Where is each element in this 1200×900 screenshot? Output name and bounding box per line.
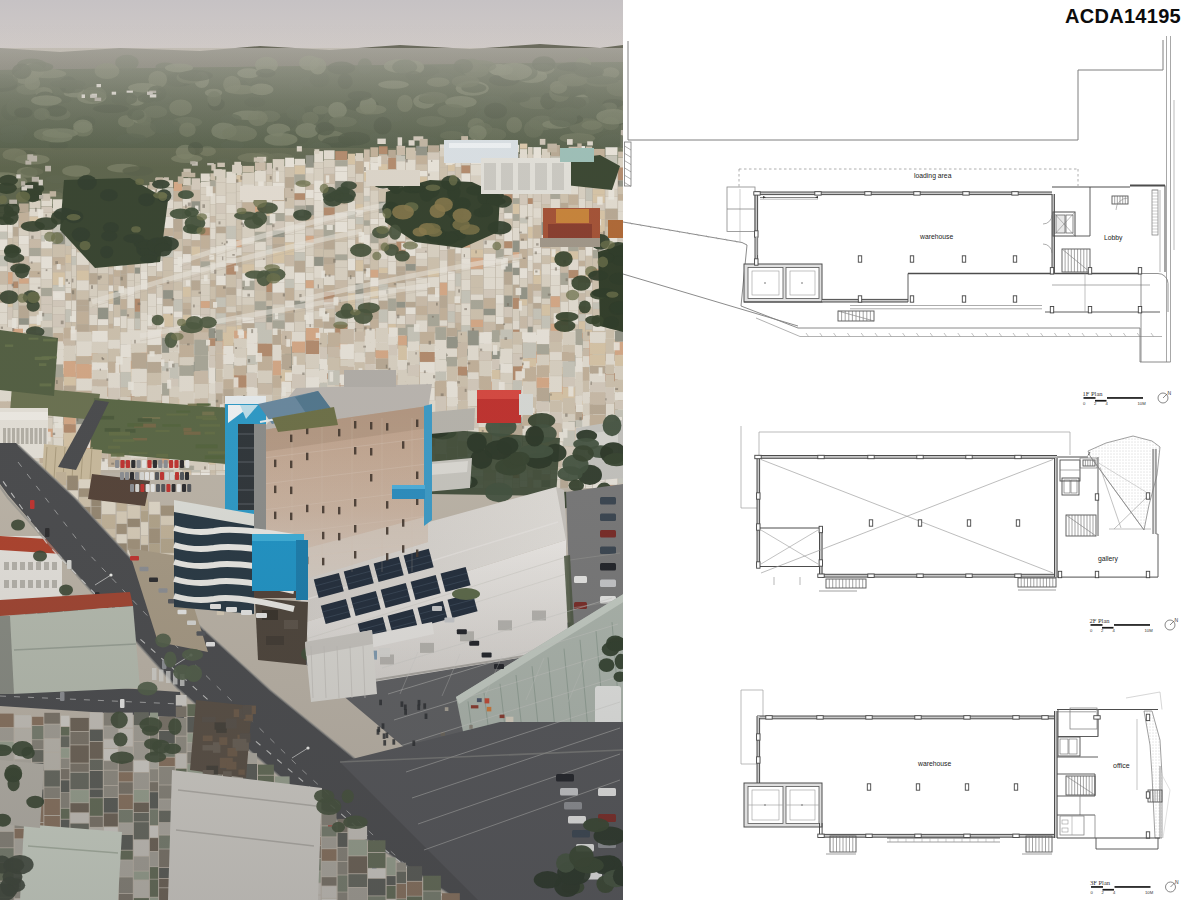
svg-text:office: office [1113,762,1130,769]
svg-text:N: N [1175,879,1179,885]
svg-text:ACDA14195: ACDA14195 [1065,5,1181,27]
svg-text:4: 4 [1106,401,1109,406]
svg-text:4: 4 [1113,890,1116,895]
svg-text:0: 0 [1090,628,1093,633]
svg-text:10M: 10M [1145,628,1154,633]
svg-text:10M: 10M [1138,401,1147,406]
svg-text:10M: 10M [1145,890,1154,895]
svg-text:N: N [1175,617,1179,623]
svg-text:2F Plan: 2F Plan [1090,617,1111,624]
svg-text:0: 0 [1091,890,1094,895]
svg-text:warehouse: warehouse [917,760,951,767]
svg-text:1F Plan: 1F Plan [1083,390,1104,397]
svg-text:N: N [1168,390,1172,396]
svg-text:4: 4 [1113,628,1116,633]
svg-text:Lobby: Lobby [1104,234,1123,242]
svg-text:0: 0 [1083,401,1086,406]
svg-text:loading area: loading area [914,172,952,180]
svg-text:3F Plan: 3F Plan [1090,879,1111,886]
svg-text:gallery: gallery [1098,555,1119,563]
svg-text:warehouse: warehouse [919,233,953,240]
